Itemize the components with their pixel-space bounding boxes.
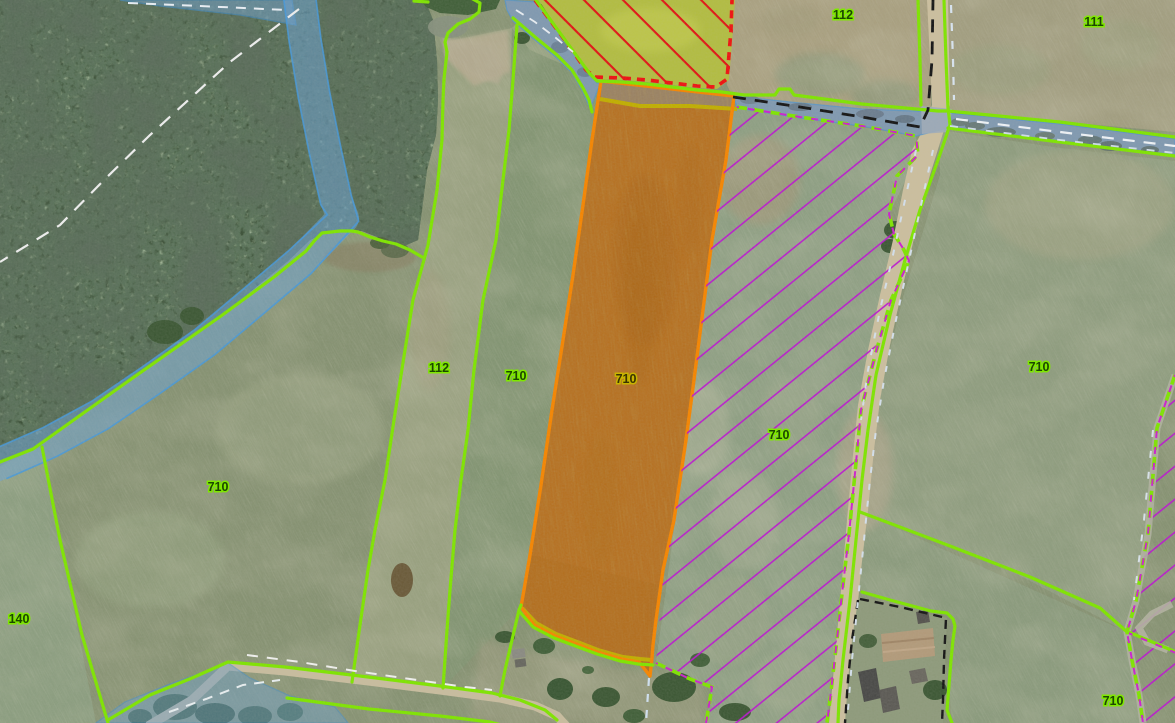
- svg-text:111: 111: [1084, 15, 1104, 29]
- svg-text:112: 112: [429, 361, 449, 375]
- svg-text:112: 112: [833, 8, 853, 22]
- svg-text:710: 710: [1103, 694, 1124, 708]
- svg-text:710: 710: [616, 372, 637, 386]
- svg-text:140: 140: [9, 612, 30, 626]
- svg-text:710: 710: [506, 369, 527, 383]
- svg-text:710: 710: [208, 480, 229, 494]
- svg-text:710: 710: [1029, 360, 1050, 374]
- svg-text:710: 710: [769, 428, 790, 442]
